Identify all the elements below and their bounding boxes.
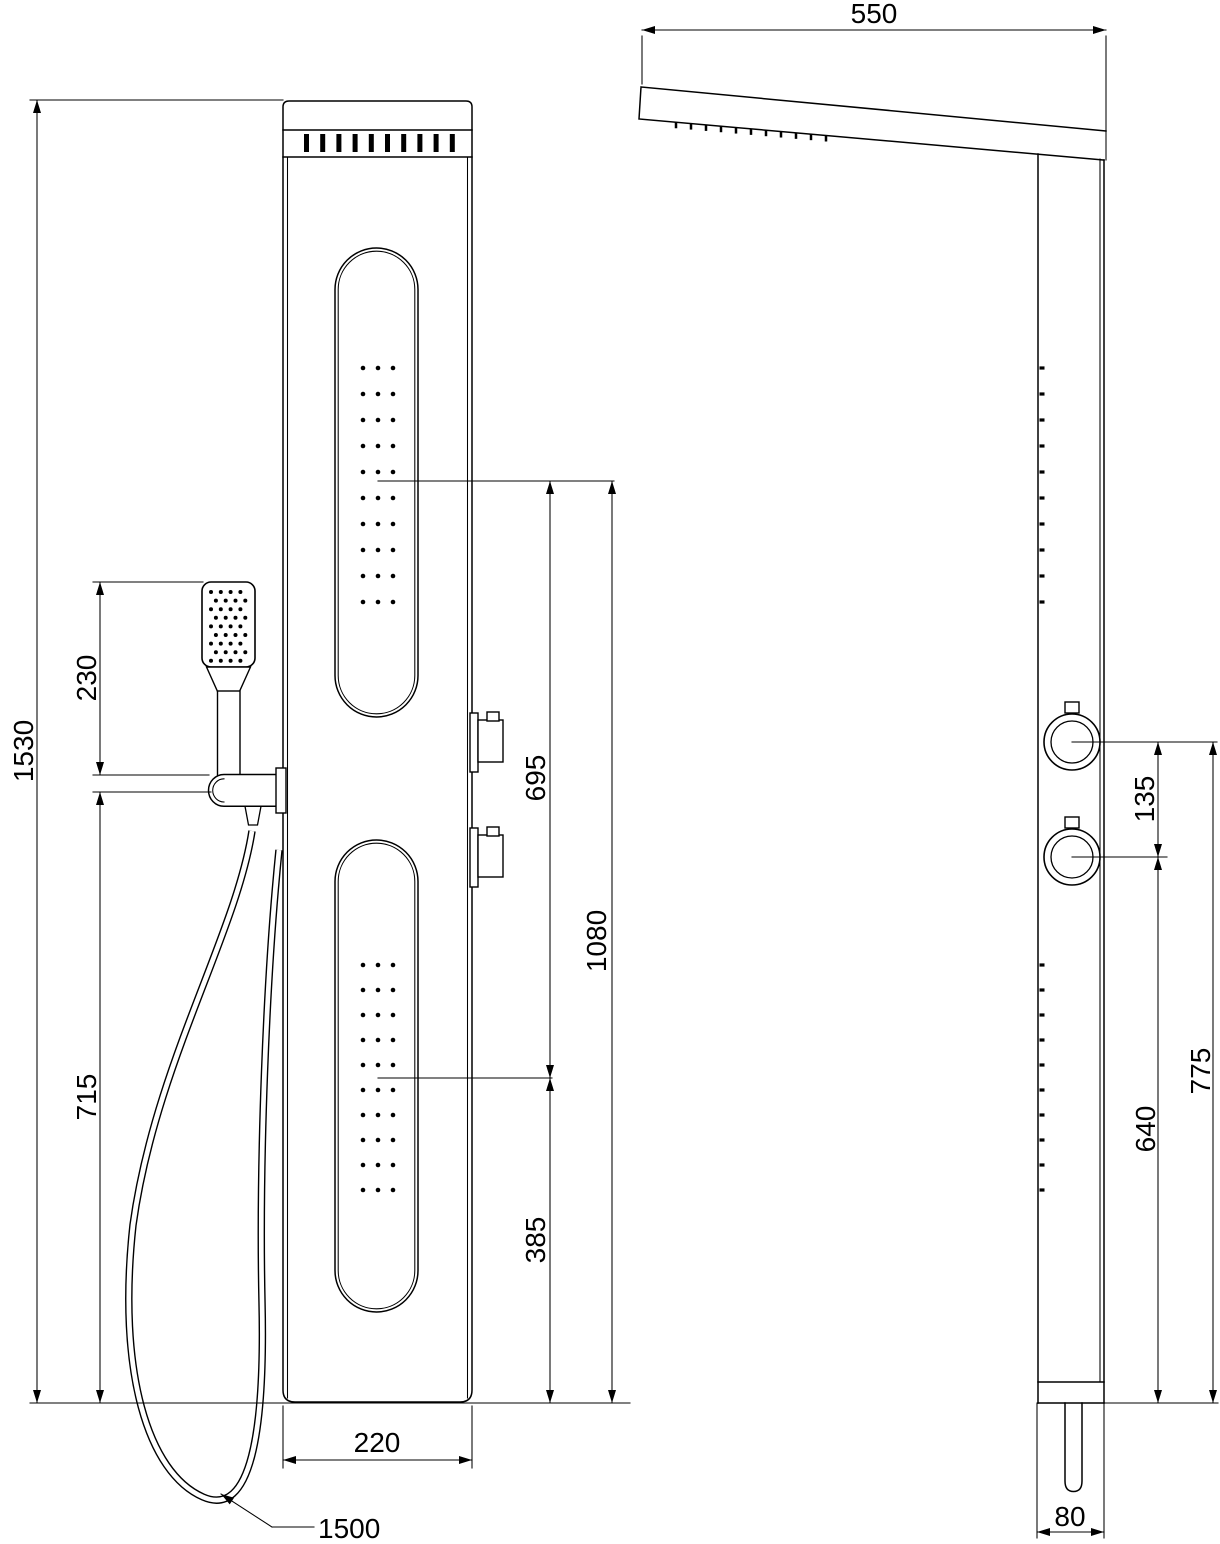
dim-label-handset-offset: 230 [71,655,102,702]
upper-jet-nozzles [361,366,396,605]
side-jet-nozzles [1040,366,1045,1191]
dim-label-hose-length: 1500 [318,1513,380,1544]
handset-handle [218,691,241,777]
control-knob-upper-side [1044,702,1100,770]
rain-outlet-slots [304,134,455,152]
hand-shower [129,582,286,1500]
dim-label-holder-height: 715 [71,1074,102,1121]
hose-connector [245,806,261,825]
handset-head [202,582,255,667]
handset-neck [207,667,251,693]
shower-panel-technical-drawing: 1530 230 715 695 1080 385 220 1500 550 [0,0,1220,1544]
front-dimension-lines [30,100,630,1527]
dim-label-panel-width: 220 [354,1427,401,1458]
diverter-knob-upper [470,712,503,772]
diverter-knob-lower [470,827,503,887]
dim-label-jet-spacing: 695 [520,755,551,802]
side-view: 550 135 640 775 80 [639,0,1218,1538]
front-view: 1530 230 715 695 1080 385 220 1500 [8,100,630,1544]
dim-label-lower-knob-height: 640 [1130,1106,1161,1153]
drawing-canvas: 1530 230 715 695 1080 385 220 1500 550 [0,0,1220,1544]
water-spout [1065,1403,1082,1492]
canopy-nozzles [675,122,828,141]
dim-label-upper-jet-height: 1080 [581,910,612,972]
head-shower-canopy [639,87,1106,160]
dim-label-head-projection: 550 [851,0,898,29]
dim-label-lower-jet-height: 385 [520,1217,551,1264]
lower-jet-panel [335,840,418,1312]
control-knob-lower-side [1044,817,1100,885]
dim-label-panel-depth: 80 [1054,1501,1085,1532]
panel-body [283,130,472,1402]
dim-label-overall-height: 1530 [8,720,39,782]
panel-top-cap [283,101,472,130]
dim-label-knob-spacing: 135 [1129,776,1160,823]
dim-label-upper-knob-height: 775 [1185,1048,1216,1095]
upper-jet-panel [335,248,418,717]
shower-hose [129,831,279,1500]
holder-wall-plate [276,768,286,813]
